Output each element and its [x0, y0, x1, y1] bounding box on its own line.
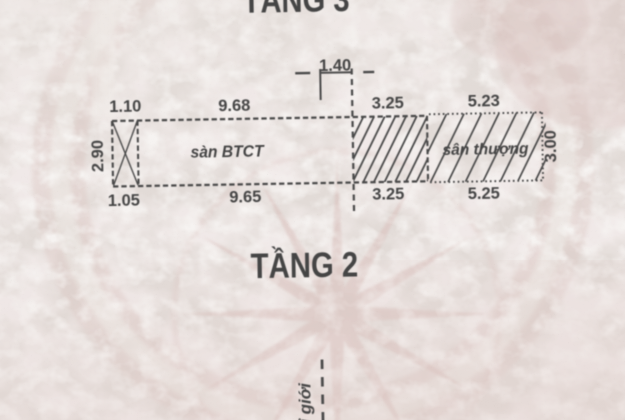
svg-text:5.23: 5.23 — [468, 92, 500, 111]
svg-text:3.00: 3.00 — [542, 130, 561, 162]
svg-text:9.65: 9.65 — [229, 188, 261, 207]
svg-text:TẦNG 2: TẦNG 2 — [250, 244, 358, 286]
svg-text:TẦNG 3: TẦNG 3 — [242, 0, 350, 21]
svg-text:3.25: 3.25 — [372, 185, 404, 204]
svg-text:9.68: 9.68 — [218, 97, 250, 116]
svg-text:sân thượng: sân thượng — [442, 141, 529, 159]
svg-text:5.25: 5.25 — [468, 185, 500, 204]
svg-text:3.25: 3.25 — [372, 94, 404, 113]
svg-text:1.05: 1.05 — [108, 192, 140, 211]
svg-text:ỉ giới: ỉ giới — [295, 382, 315, 420]
svg-text:1.10: 1.10 — [109, 98, 141, 117]
svg-text:sàn BTCT: sàn BTCT — [190, 141, 265, 161]
svg-text:2.90: 2.90 — [89, 140, 108, 172]
